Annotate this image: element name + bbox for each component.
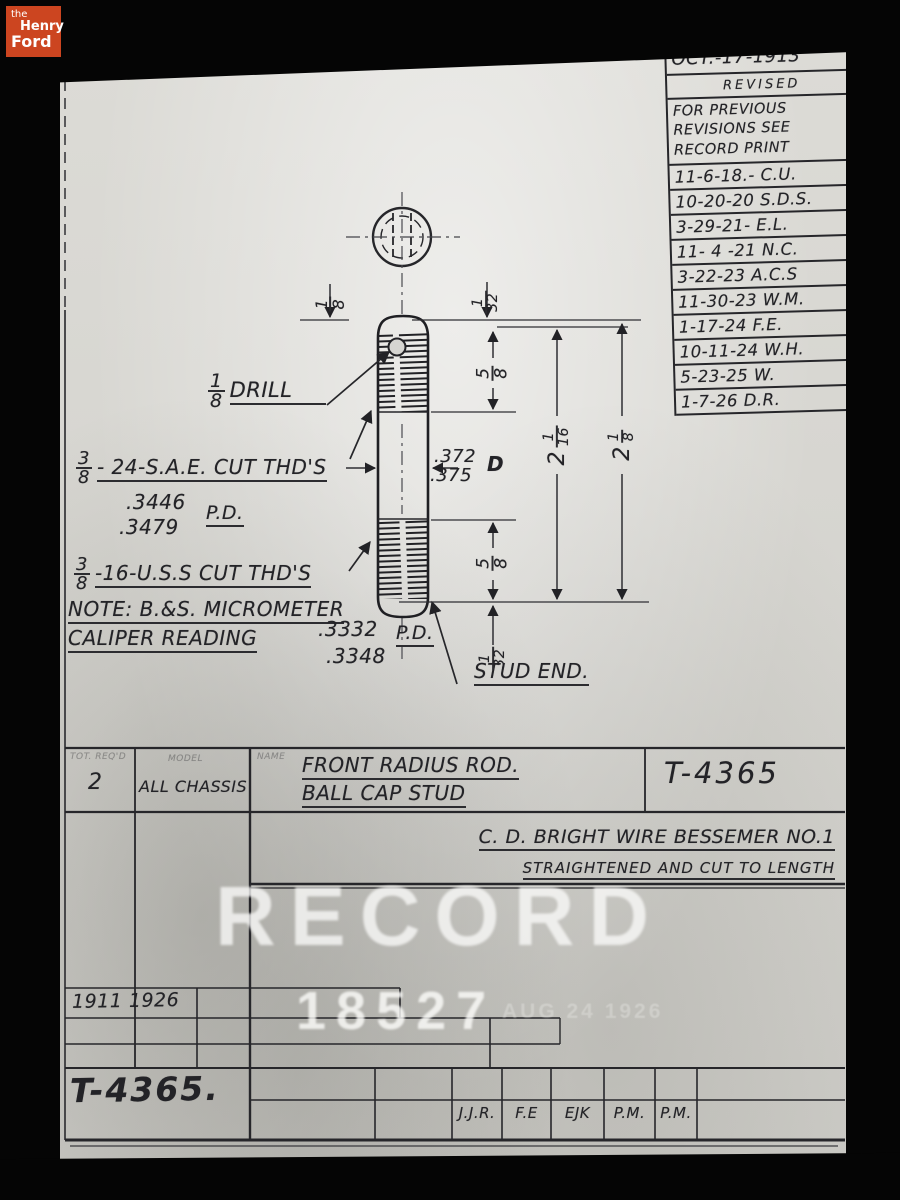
micrometer-pd-value-2: .3348 xyxy=(326,644,386,668)
revision-note: FOR PREVIOUS REVISIONS SEE RECORD PRINT xyxy=(668,95,854,166)
henry-ford-logo: the Henry Ford xyxy=(6,6,61,57)
overall-length-dim: 218 xyxy=(601,418,643,472)
part-name-line1: FRONT RADIUS ROD. xyxy=(302,753,519,780)
tip-bottom-dim: 132 xyxy=(475,634,511,682)
uss-label: -16-U.S.S CUT THD'S xyxy=(95,561,312,588)
stud-front-view xyxy=(378,316,428,617)
photo-edge-bottom xyxy=(0,1153,900,1200)
date-stamp: AUG 24 1926 xyxy=(502,1000,663,1024)
micrometer-pd-value-1: .3332 xyxy=(318,617,378,641)
material-spec: C. D. BRIGHT WIRE BESSEMER NO.1 xyxy=(330,826,835,848)
diameter-value-2: .375 xyxy=(430,465,472,486)
model-value: ALL CHASSIS xyxy=(139,777,247,796)
tip-top-dim: 132 xyxy=(469,274,503,330)
uss-fraction: 38 xyxy=(74,556,90,592)
micrometer-note-line2: CALIPER READING xyxy=(68,626,257,653)
approval-initials: EJK xyxy=(551,1104,604,1122)
record-stamp: RECORD xyxy=(215,868,663,965)
photo-edge-left xyxy=(0,0,60,1200)
photo-edge-right xyxy=(846,0,900,1200)
sae-label: - 24-S.A.E. CUT THD'S xyxy=(97,455,327,482)
approval-initials: F.E xyxy=(502,1104,551,1122)
diameter-suffix: D xyxy=(487,452,504,476)
material-line: C. D. BRIGHT WIRE BESSEMER NO.1 xyxy=(479,826,835,851)
qty-column-header: TOT. REQ'D xyxy=(70,752,130,762)
accession-number-stamp: 18527 xyxy=(296,980,496,1042)
scanned-drawing-photo: 18 DRILL 38 - 24-S.A.E. CUT THD'S .3446 … xyxy=(0,0,900,1200)
drill-fraction: 18 xyxy=(208,372,225,410)
approval-initials: P.M. xyxy=(604,1104,655,1122)
qty-value: 2 xyxy=(88,770,103,795)
drill-label: DRILL xyxy=(230,378,327,405)
footer-part-number: T-4365. xyxy=(70,1069,220,1111)
sae-pd-value-1: .3446 xyxy=(126,490,186,514)
micrometer-pd-label: P.D. xyxy=(396,622,434,647)
revision-entry: 1-7-26 D.R. xyxy=(676,386,861,416)
approval-initials: P.M. xyxy=(655,1104,697,1122)
revision-table: OCT.-17-1913 REVISED FOR PREVIOUS REVISI… xyxy=(664,37,860,416)
lower-thread-length-dim: 58 xyxy=(475,541,511,585)
name-column-header: NAME xyxy=(257,752,285,762)
sae-fraction: 38 xyxy=(76,450,92,486)
years-cell: 1911 1926 xyxy=(72,989,180,1013)
sae-pd-label: P.D. xyxy=(206,502,244,527)
logo-ford: Ford xyxy=(11,34,52,50)
model-column-header: MODEL xyxy=(168,754,203,764)
uss-thread-callout: 38 -16-U.S.S CUT THD'S xyxy=(74,556,311,592)
sae-thread-callout: 38 - 24-S.A.E. CUT THD'S xyxy=(76,450,327,486)
stud-top-view xyxy=(346,208,460,266)
upper-thread-length-dim: 58 xyxy=(475,351,511,395)
drill-callout: 18 DRILL xyxy=(208,372,326,410)
approval-initials: J.J.R. xyxy=(452,1104,502,1122)
revision-note-line: RECORD PRINT xyxy=(674,138,792,161)
inner-length-dim: 2116 xyxy=(536,418,578,472)
part-number: T-4365 xyxy=(664,756,780,790)
diameter-value-1: .372 xyxy=(434,446,476,467)
cap-height-dim: 18 xyxy=(313,278,347,330)
sae-pd-value-2: .3479 xyxy=(119,515,179,539)
micrometer-note-line1: NOTE: B.&S. MICROMETER xyxy=(68,597,344,624)
part-name-line2: BALL CAP STUD xyxy=(302,781,466,808)
